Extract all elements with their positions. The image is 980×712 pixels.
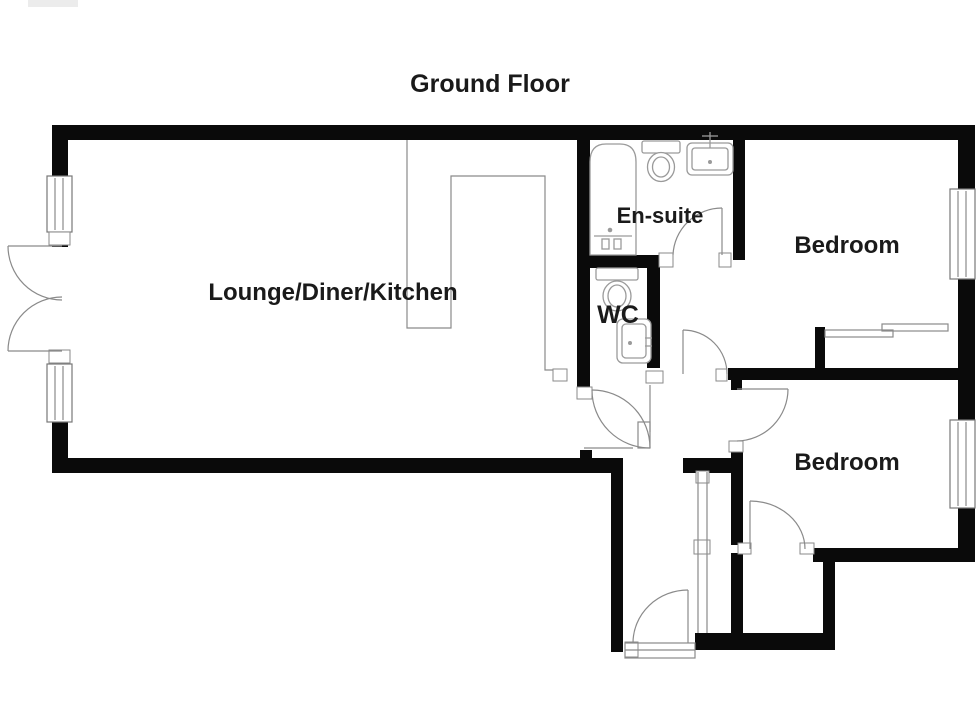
room-label-bedroom-top: Bedroom bbox=[794, 232, 899, 259]
jamb-bedroom2-door bbox=[729, 441, 743, 452]
jamb-ensuite-right bbox=[719, 253, 731, 267]
wall-bottom bbox=[695, 633, 835, 650]
floor-plan-page: Ground Floor bbox=[0, 0, 980, 712]
jamb-cupboard-right bbox=[800, 543, 814, 554]
wall-lounge-door-stub bbox=[580, 450, 592, 460]
room-label-lounge: Lounge/Diner/Kitchen bbox=[208, 279, 457, 306]
room-label-bedroom-bottom: Bedroom bbox=[794, 449, 899, 476]
bedroom1-door bbox=[683, 330, 727, 374]
jamb-cupboard-left bbox=[738, 543, 751, 554]
window-right-lower bbox=[950, 420, 975, 508]
wall-bedroom2-left-lower bbox=[731, 553, 743, 633]
jamb-french-bottom bbox=[49, 350, 70, 363]
entrance-door bbox=[633, 590, 688, 643]
bathtub-icon bbox=[590, 144, 636, 255]
window-right-upper bbox=[950, 189, 975, 279]
floor-plan-drawing: Ground Floor bbox=[0, 0, 980, 712]
window-left-upper bbox=[47, 176, 72, 232]
wall-right-mid bbox=[958, 278, 975, 421]
ensuite-fixtures bbox=[590, 132, 733, 255]
wall-bedroom2-south bbox=[813, 548, 975, 562]
cupboard-door bbox=[750, 501, 805, 549]
french-doors bbox=[8, 246, 62, 351]
wall-hall-left bbox=[611, 473, 623, 652]
wall-lounge-bottom bbox=[52, 458, 623, 473]
jamb-bedroom1-door bbox=[716, 369, 727, 381]
toilet-icon-ensuite bbox=[642, 141, 680, 182]
wall-right-upper bbox=[958, 125, 975, 190]
bedroom2-door bbox=[737, 389, 788, 441]
wall-wardrobe-return bbox=[815, 327, 825, 368]
wall-bedroom2-left-upper bbox=[731, 452, 743, 545]
room-label-ensuite: En-suite bbox=[617, 203, 704, 228]
hallway-doors bbox=[584, 385, 650, 448]
wardrobe-sliding-doors bbox=[825, 324, 948, 337]
walls bbox=[52, 125, 975, 652]
jamb-ensuite-left bbox=[659, 253, 673, 267]
kitchen-counter-outline bbox=[407, 140, 553, 370]
jamb-french-top bbox=[49, 232, 70, 245]
jamb-midwall-end bbox=[577, 387, 592, 399]
jamb-counter-end bbox=[553, 369, 567, 381]
wall-bedroom1-south bbox=[728, 368, 975, 380]
room-label-wc: WC bbox=[597, 301, 639, 329]
scan-artifact bbox=[28, 0, 78, 7]
page-title: Ground Floor bbox=[410, 70, 570, 98]
jamb-wcwall-end bbox=[646, 371, 663, 383]
wall-ensuite-right bbox=[733, 140, 745, 260]
wall-top bbox=[52, 125, 975, 140]
wall-left-upper bbox=[52, 125, 68, 178]
window-left-lower bbox=[47, 364, 72, 422]
